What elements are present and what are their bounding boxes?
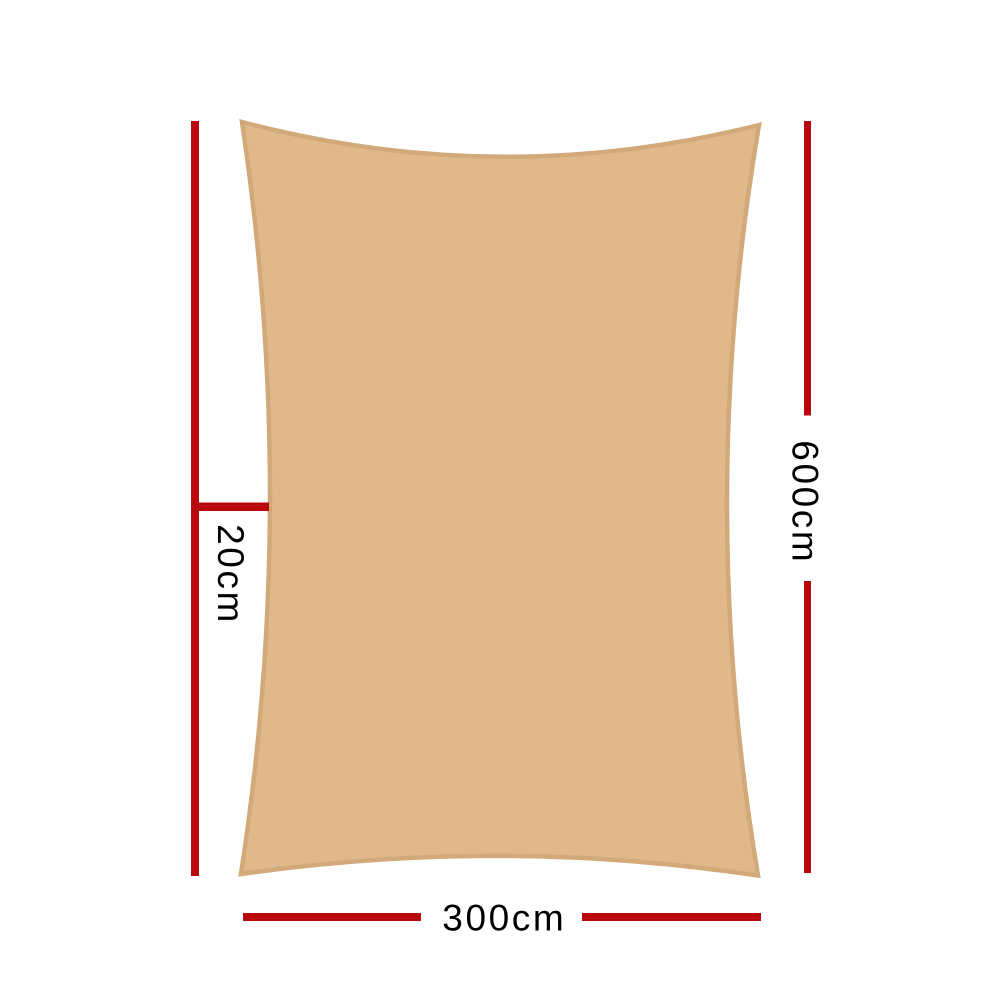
svg-text:300cm: 300cm	[442, 898, 566, 939]
svg-text:600cm: 600cm	[785, 440, 826, 564]
svg-text:20cm: 20cm	[210, 524, 251, 625]
